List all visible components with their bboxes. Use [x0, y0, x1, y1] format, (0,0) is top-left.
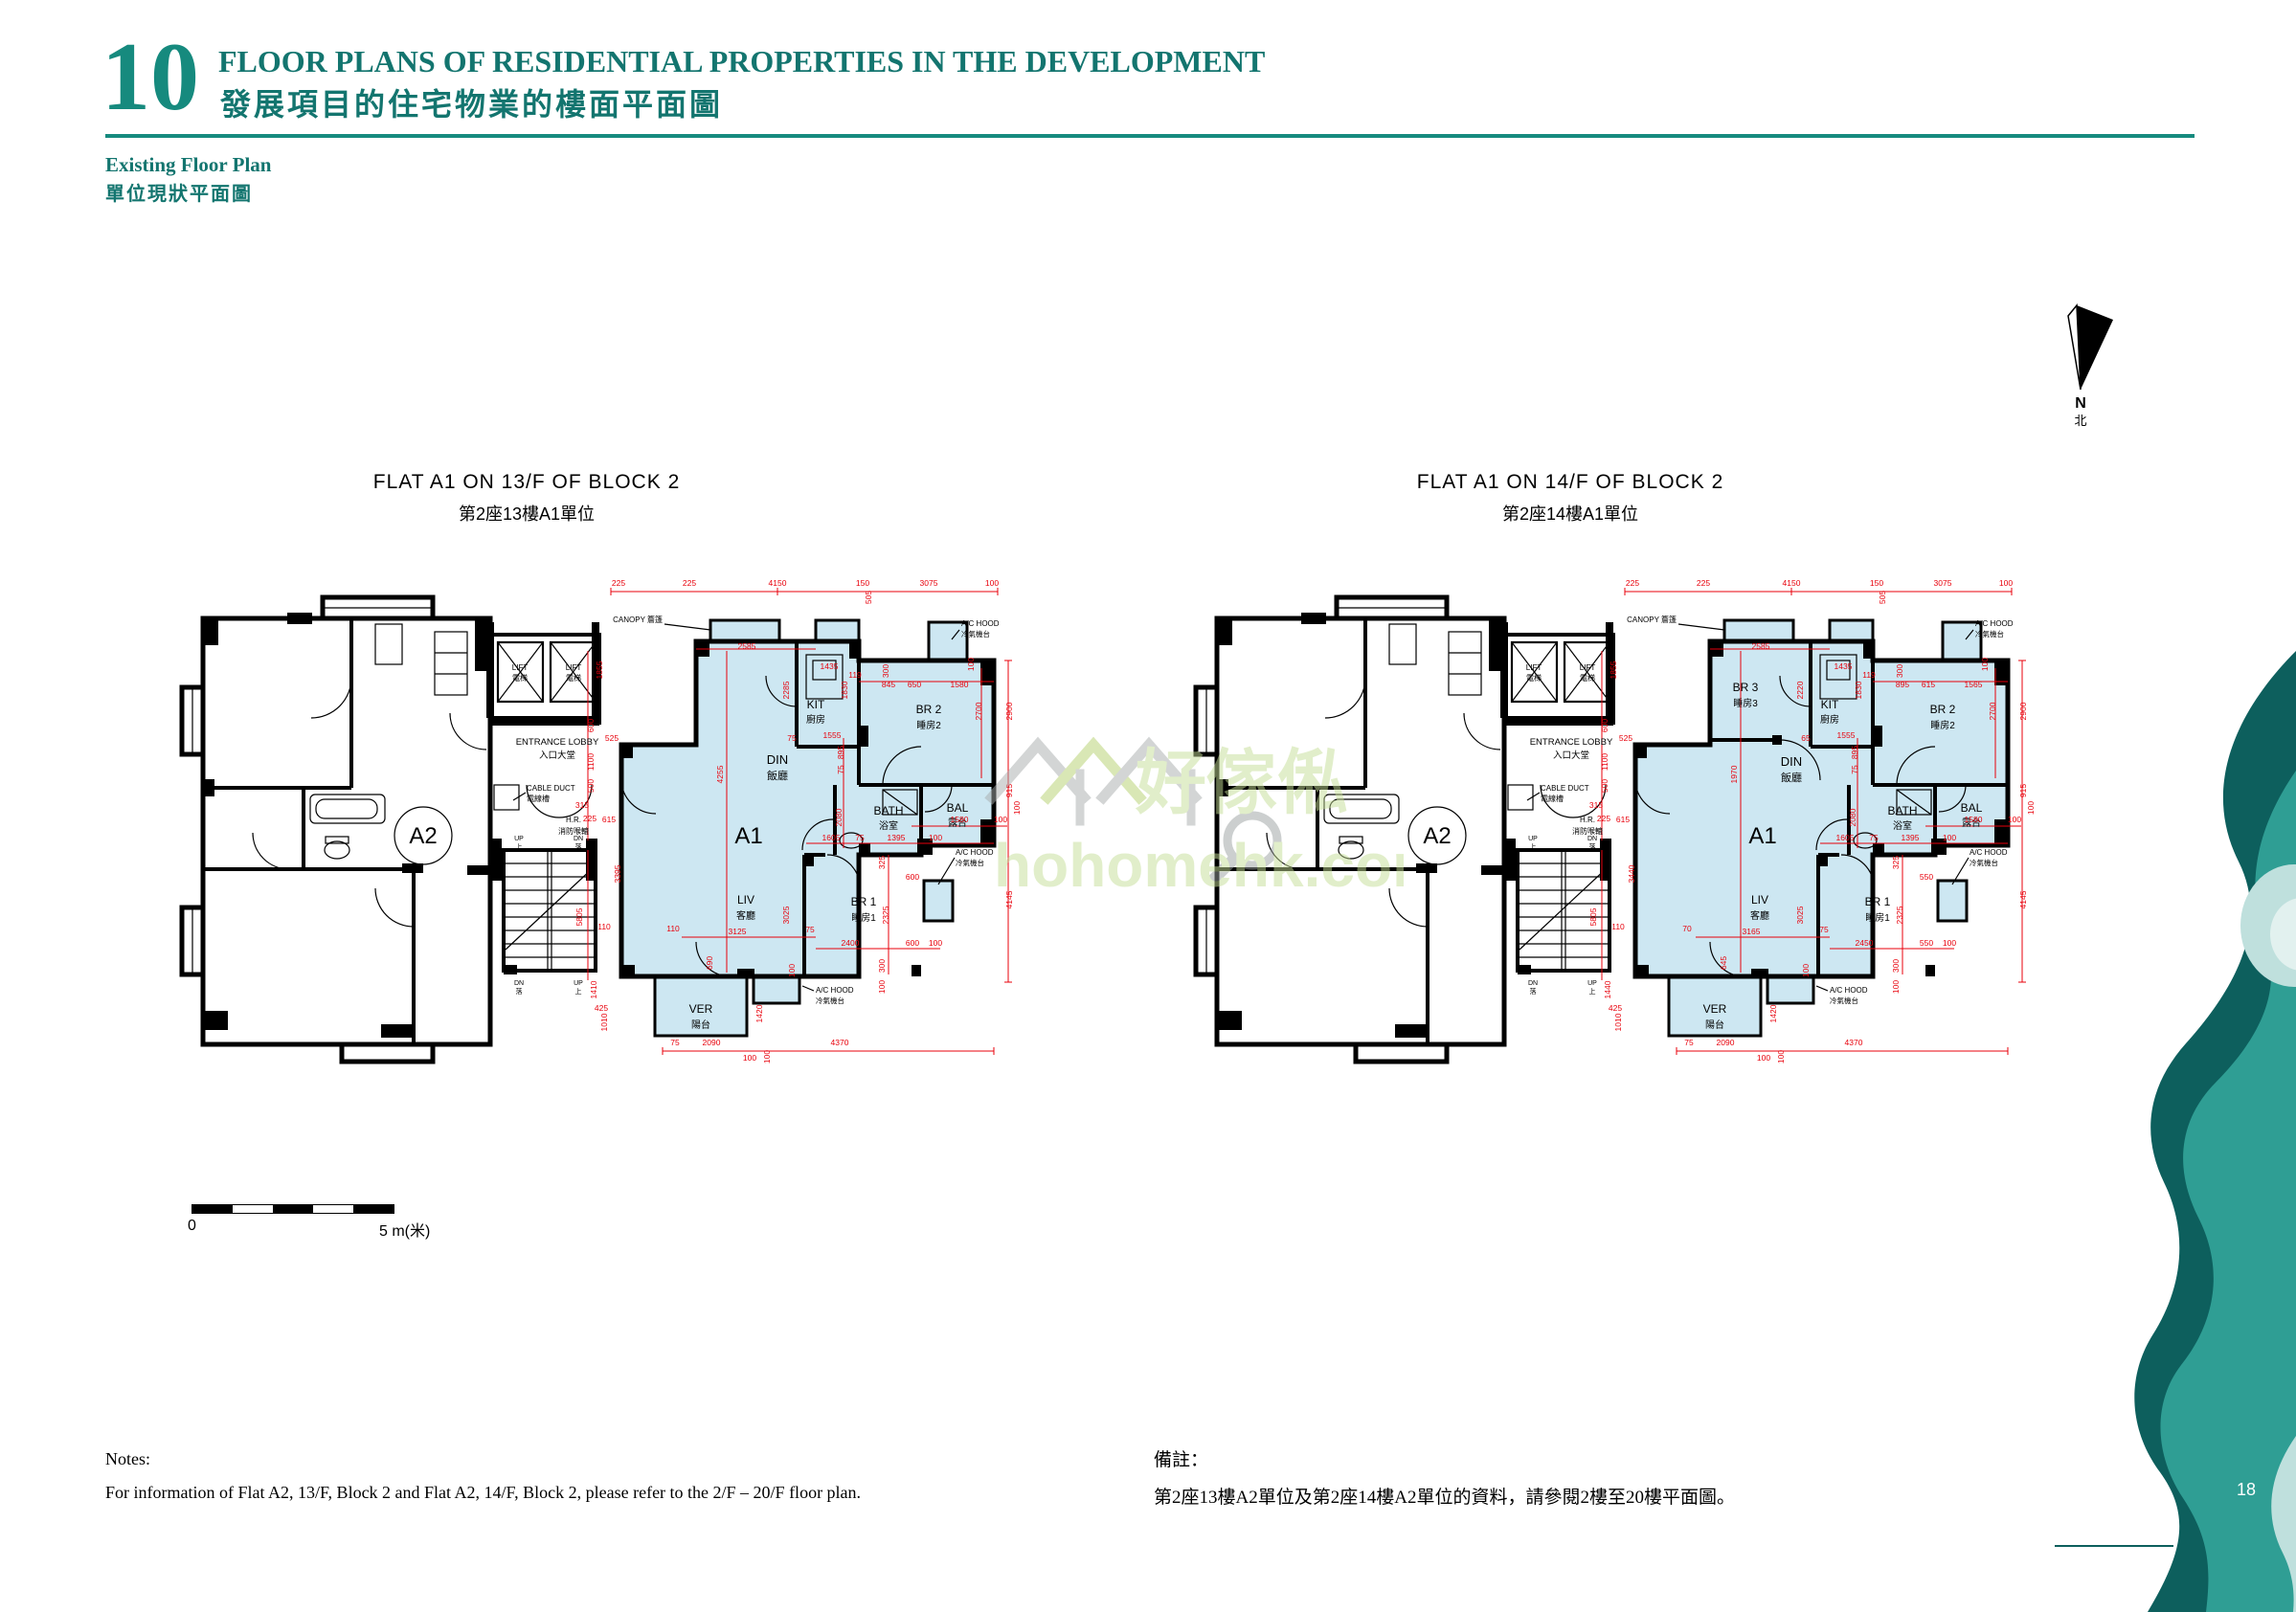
svg-text:650: 650 — [908, 680, 921, 689]
svg-text:100: 100 — [1980, 658, 1990, 671]
svg-text:690: 690 — [705, 956, 714, 970]
svg-text:895: 895 — [836, 746, 845, 759]
svg-text:5805: 5805 — [1588, 907, 1598, 926]
svg-text:冷氣機台: 冷氣機台 — [956, 858, 984, 867]
svg-text:75: 75 — [787, 733, 797, 743]
svg-text:1580: 1580 — [1965, 815, 1983, 824]
svg-text:BAL: BAL — [947, 801, 969, 815]
svg-text:110: 110 — [597, 922, 611, 931]
svg-text:A1: A1 — [734, 823, 762, 849]
svg-text:300: 300 — [1891, 959, 1901, 973]
svg-text:2285: 2285 — [781, 681, 791, 699]
svg-text:落: 落 — [575, 842, 582, 851]
svg-text:150: 150 — [1870, 578, 1883, 588]
svg-text:客廳: 客廳 — [736, 909, 755, 922]
svg-text:5805: 5805 — [574, 907, 584, 926]
svg-text:845: 845 — [882, 680, 895, 689]
svg-text:UP: UP — [514, 836, 524, 842]
svg-text:615: 615 — [1616, 815, 1630, 824]
svg-text:DN: DN — [1528, 980, 1538, 987]
svg-text:陽台: 陽台 — [1705, 1019, 1724, 1031]
svg-text:2900: 2900 — [1004, 702, 1014, 720]
svg-text:500: 500 — [586, 779, 596, 793]
page-title: FLOOR PLANS OF RESIDENTIAL PROPERTIES IN… — [218, 44, 1265, 79]
svg-text:KIT: KIT — [807, 698, 825, 711]
svg-text:2450: 2450 — [1856, 938, 1874, 948]
svg-text:100: 100 — [1012, 801, 1022, 815]
svg-text:225: 225 — [1626, 578, 1639, 588]
svg-text:A2: A2 — [409, 823, 437, 849]
svg-text:3440: 3440 — [1627, 864, 1636, 883]
svg-text:75: 75 — [855, 833, 865, 842]
svg-text:315: 315 — [575, 800, 589, 810]
svg-text:75: 75 — [670, 1038, 680, 1047]
svg-text:3025: 3025 — [781, 906, 791, 924]
svg-text:65: 65 — [1801, 733, 1811, 743]
svg-text:1435: 1435 — [1835, 661, 1853, 671]
brochure-page: 10 FLOOR PLANS OF RESIDENTIAL PROPERTIES… — [0, 0, 2296, 1612]
svg-text:電梯: 電梯 — [512, 673, 528, 683]
svg-text:425: 425 — [1609, 1003, 1622, 1013]
svg-text:100: 100 — [966, 658, 976, 671]
svg-text:H.R.: H.R. — [1580, 816, 1595, 824]
svg-text:100: 100 — [1999, 578, 2013, 588]
svg-text:150: 150 — [856, 578, 869, 588]
svg-text:4145: 4145 — [1004, 890, 1014, 908]
notes-chinese: 備註： 第2座13樓A2單位及第2座14樓A2單位的資料，請參閱2樓至20樓平面… — [1154, 1445, 1735, 1509]
svg-text:A/C HOOD: A/C HOOD — [1975, 619, 2014, 628]
svg-text:2325: 2325 — [1895, 906, 1904, 924]
svg-text:4370: 4370 — [1845, 1038, 1863, 1047]
svg-text:A/C HOOD: A/C HOOD — [1970, 848, 2008, 857]
svg-text:電梯: 電梯 — [1526, 673, 1542, 683]
svg-text:H.R.: H.R. — [566, 816, 581, 824]
svg-text:3025: 3025 — [1795, 906, 1805, 924]
svg-text:DN: DN — [1587, 836, 1597, 842]
svg-text:1100: 1100 — [1600, 753, 1609, 772]
svg-text:BR 2: BR 2 — [916, 703, 942, 716]
svg-text:225: 225 — [1597, 814, 1610, 823]
svg-text:3125: 3125 — [729, 927, 747, 936]
svg-text:浴室: 浴室 — [879, 819, 898, 832]
svg-text:500: 500 — [1600, 779, 1609, 793]
svg-text:冷氣機台: 冷氣機台 — [961, 629, 990, 638]
svg-text:1395: 1395 — [1902, 833, 1920, 842]
svg-text:電梯: 電梯 — [566, 673, 581, 683]
svg-text:BR 1: BR 1 — [851, 895, 877, 908]
svg-text:75: 75 — [1869, 833, 1879, 842]
svg-text:電梯: 電梯 — [1580, 673, 1595, 683]
svg-text:1970: 1970 — [1729, 765, 1739, 783]
svg-text:895: 895 — [1850, 746, 1859, 759]
notes-english: Notes: For information of Flat A2, 13/F,… — [105, 1449, 861, 1503]
svg-text:BAL: BAL — [1961, 801, 1983, 815]
svg-text:2090: 2090 — [703, 1038, 721, 1047]
svg-text:3165: 3165 — [1743, 927, 1761, 936]
svg-text:UP: UP — [574, 980, 583, 987]
subtitle: Existing Floor Plan — [105, 153, 271, 177]
svg-text:505: 505 — [1878, 591, 1887, 604]
svg-text:入口大堂: 入口大堂 — [539, 750, 575, 761]
svg-text:315: 315 — [1589, 800, 1603, 810]
svg-text:冷氣機台: 冷氣機台 — [1975, 629, 2004, 638]
svg-text:落: 落 — [516, 987, 523, 996]
svg-text:2700: 2700 — [1988, 702, 1997, 720]
svg-text:睡房1: 睡房1 — [851, 911, 876, 924]
svg-text:1440: 1440 — [1603, 980, 1612, 998]
svg-text:225: 225 — [683, 578, 696, 588]
svg-text:1855: 1855 — [1609, 660, 1618, 679]
svg-text:睡房3: 睡房3 — [1733, 697, 1758, 709]
svg-text:100: 100 — [929, 833, 942, 842]
svg-text:75: 75 — [1684, 1038, 1694, 1047]
svg-text:100: 100 — [1801, 964, 1811, 977]
svg-text:600: 600 — [906, 938, 919, 948]
svg-text:廚房: 廚房 — [1820, 713, 1839, 726]
svg-text:2585: 2585 — [1752, 641, 1770, 651]
page-title-chinese: 發展項目的住宅物業的樓面平面圖 — [220, 80, 723, 124]
svg-text:4150: 4150 — [1783, 578, 1801, 588]
svg-text:3075: 3075 — [920, 578, 938, 588]
svg-text:CABLE DUCT: CABLE DUCT — [527, 784, 575, 793]
subtitle-chinese: 單位現狀平面圖 — [105, 178, 253, 206]
svg-text:冷氣機台: 冷氣機台 — [1830, 996, 1858, 1005]
svg-text:1410: 1410 — [589, 980, 598, 998]
svg-text:100: 100 — [743, 1053, 756, 1063]
svg-text:入口大堂: 入口大堂 — [1553, 750, 1589, 761]
svg-text:615: 615 — [602, 815, 616, 824]
notes-body: For information of Flat A2, 13/F, Block … — [105, 1483, 861, 1503]
svg-text:LIFT: LIFT — [1580, 663, 1596, 672]
svg-text:廚房: 廚房 — [806, 713, 825, 726]
svg-text:550: 550 — [1920, 938, 1933, 948]
svg-text:CANOPY 簷篷: CANOPY 簷篷 — [1627, 615, 1677, 624]
svg-text:4150: 4150 — [769, 578, 787, 588]
svg-text:1010: 1010 — [599, 1013, 609, 1031]
svg-text:LIV: LIV — [737, 893, 754, 907]
svg-text:100: 100 — [762, 1050, 772, 1063]
svg-text:75: 75 — [1850, 765, 1859, 774]
svg-text:CANOPY 簷篷: CANOPY 簷篷 — [613, 615, 663, 624]
svg-text:A/C HOOD: A/C HOOD — [956, 848, 994, 857]
svg-text:KIT: KIT — [1821, 698, 1839, 711]
svg-text:飯廳: 飯廳 — [767, 769, 788, 782]
svg-text:LIFT: LIFT — [566, 663, 582, 672]
plan-title-14f-zh: 第2座14樓A1單位 — [1283, 501, 1857, 526]
svg-text:525: 525 — [605, 733, 619, 743]
svg-text:上: 上 — [516, 842, 523, 851]
notes-heading: Notes: — [105, 1449, 861, 1469]
svg-text:75: 75 — [836, 765, 845, 774]
svg-text:2090: 2090 — [1717, 1038, 1735, 1047]
svg-text:2700: 2700 — [974, 702, 983, 720]
svg-text:4370: 4370 — [831, 1038, 849, 1047]
plan-title-13f: FLAT A1 ON 13/F OF BLOCK 2 第2座13樓A1單位 — [239, 471, 814, 526]
svg-text:3075: 3075 — [1934, 578, 1952, 588]
svg-text:上: 上 — [1530, 842, 1537, 851]
svg-text:525: 525 — [1619, 733, 1632, 743]
svg-text:100: 100 — [1943, 938, 1956, 948]
svg-text:325: 325 — [1891, 856, 1901, 869]
svg-text:冷氣機台: 冷氣機台 — [1970, 858, 1998, 867]
svg-text:1565: 1565 — [1965, 680, 1983, 689]
notes-heading-zh: 備註： — [1154, 1445, 1735, 1471]
svg-text:1605: 1605 — [822, 833, 841, 842]
svg-text:100: 100 — [1757, 1053, 1770, 1063]
svg-text:N: N — [2075, 395, 2086, 412]
svg-text:睡房2: 睡房2 — [1930, 719, 1955, 731]
notes-body-zh: 第2座13樓A2單位及第2座14樓A2單位的資料，請參閱2樓至20樓平面圖。 — [1154, 1483, 1735, 1509]
svg-text:615: 615 — [1922, 680, 1935, 689]
svg-text:1435: 1435 — [821, 661, 839, 671]
scale-bar — [191, 1204, 394, 1214]
svg-text:消防喉轆: 消防喉轆 — [558, 826, 589, 836]
scale-start-label: 0 — [188, 1218, 196, 1235]
svg-text:BR 2: BR 2 — [1930, 703, 1956, 716]
svg-text:3395: 3395 — [613, 864, 622, 883]
svg-text:BR 3: BR 3 — [1733, 681, 1759, 694]
svg-text:1830: 1830 — [840, 681, 849, 699]
wave-decoration — [2057, 593, 2296, 1612]
svg-text:A2: A2 — [1423, 823, 1451, 849]
svg-text:2900: 2900 — [2018, 702, 2028, 720]
svg-text:A1: A1 — [1748, 823, 1776, 849]
plan-title-13f-zh: 第2座13樓A1單位 — [239, 501, 814, 526]
svg-text:1580: 1580 — [951, 815, 969, 824]
plan-title-14f-en: FLAT A1 ON 14/F OF BLOCK 2 — [1283, 471, 1857, 494]
svg-text:北: 北 — [2074, 414, 2086, 428]
svg-text:1830: 1830 — [1854, 681, 1863, 699]
svg-text:1605: 1605 — [1836, 833, 1855, 842]
svg-text:2080: 2080 — [834, 808, 844, 826]
svg-text:100: 100 — [1776, 1050, 1786, 1063]
svg-text:UP: UP — [1528, 836, 1538, 842]
svg-text:100: 100 — [929, 938, 942, 948]
svg-text:1420: 1420 — [754, 1004, 764, 1022]
svg-text:645: 645 — [1719, 956, 1728, 970]
svg-text:110: 110 — [666, 924, 680, 933]
svg-text:浴室: 浴室 — [1893, 819, 1912, 832]
svg-text:UP: UP — [1587, 980, 1597, 987]
svg-text:300: 300 — [1895, 664, 1904, 678]
svg-text:110: 110 — [1611, 922, 1625, 931]
svg-text:VER: VER — [1703, 1002, 1727, 1016]
svg-text:電線槽: 電線槽 — [527, 794, 550, 803]
svg-text:100: 100 — [985, 578, 999, 588]
svg-text:4255: 4255 — [715, 765, 725, 783]
svg-text:1100: 1100 — [586, 753, 596, 772]
svg-text:落: 落 — [1530, 987, 1537, 996]
svg-text:BATH: BATH — [1887, 804, 1917, 817]
floor-plan-13f: LIFT電梯LIFT電梯ENTRANCE LOBBY入口大堂CABLE DUCT… — [146, 563, 1026, 1099]
svg-text:100: 100 — [2026, 801, 2036, 815]
svg-text:100: 100 — [1891, 980, 1901, 994]
svg-text:1555: 1555 — [1837, 730, 1856, 740]
svg-text:冷氣機台: 冷氣機台 — [816, 996, 844, 1005]
svg-text:119: 119 — [1862, 670, 1876, 680]
svg-text:915: 915 — [2018, 784, 2028, 797]
svg-text:1395: 1395 — [888, 833, 906, 842]
svg-text:425: 425 — [595, 1003, 608, 1013]
svg-text:600: 600 — [586, 719, 596, 732]
svg-text:客廳: 客廳 — [1750, 909, 1769, 922]
svg-text:70: 70 — [1682, 924, 1692, 933]
north-arrow-icon: N 北 — [2042, 299, 2128, 437]
svg-text:600: 600 — [906, 872, 919, 882]
svg-text:A/C HOOD: A/C HOOD — [961, 619, 1000, 628]
svg-text:睡房1: 睡房1 — [1865, 911, 1890, 924]
svg-text:1855: 1855 — [595, 660, 604, 679]
svg-text:2400: 2400 — [842, 938, 860, 948]
svg-text:225: 225 — [583, 814, 597, 823]
svg-text:ENTRANCE LOBBY: ENTRANCE LOBBY — [1530, 737, 1613, 748]
svg-text:A/C HOOD: A/C HOOD — [1830, 986, 1868, 995]
svg-text:1580: 1580 — [951, 680, 969, 689]
svg-text:119: 119 — [848, 670, 862, 680]
page-number: 18 — [2237, 1480, 2256, 1500]
svg-text:325: 325 — [877, 856, 887, 869]
svg-text:1010: 1010 — [1613, 1013, 1623, 1031]
svg-text:落: 落 — [1589, 842, 1596, 851]
svg-text:上: 上 — [575, 987, 582, 996]
section-number: 10 — [101, 29, 199, 126]
svg-text:DIN: DIN — [1781, 754, 1802, 769]
svg-text:100: 100 — [1943, 833, 1956, 842]
svg-text:BR 1: BR 1 — [1865, 895, 1891, 908]
header-divider — [105, 134, 2195, 138]
svg-text:225: 225 — [612, 578, 625, 588]
svg-text:A/C HOOD: A/C HOOD — [816, 986, 854, 995]
floor-plan-14f: LIFT電梯LIFT電梯ENTRANCE LOBBY入口大堂CABLE DUCT… — [1159, 563, 2040, 1099]
svg-text:75: 75 — [1819, 925, 1829, 934]
svg-text:2325: 2325 — [881, 906, 890, 924]
svg-text:上: 上 — [1589, 987, 1596, 996]
svg-text:1420: 1420 — [1768, 1004, 1778, 1022]
svg-text:DN: DN — [574, 836, 583, 842]
svg-text:DIN: DIN — [767, 752, 788, 767]
svg-text:LIV: LIV — [1751, 893, 1768, 907]
svg-text:550: 550 — [1920, 872, 1933, 882]
svg-text:100: 100 — [787, 964, 797, 977]
svg-text:LIFT: LIFT — [1526, 663, 1542, 672]
plan-title-14f: FLAT A1 ON 14/F OF BLOCK 2 第2座14樓A1單位 — [1283, 471, 1857, 526]
svg-text:CABLE DUCT: CABLE DUCT — [1541, 784, 1589, 793]
svg-text:陽台: 陽台 — [691, 1019, 710, 1031]
svg-text:2220: 2220 — [1795, 681, 1805, 699]
svg-text:600: 600 — [1600, 719, 1609, 732]
svg-text:225: 225 — [1697, 578, 1710, 588]
svg-text:505: 505 — [864, 591, 873, 604]
svg-text:300: 300 — [881, 664, 890, 678]
svg-text:4145: 4145 — [2018, 890, 2028, 908]
svg-text:100: 100 — [2008, 815, 2021, 824]
svg-text:睡房2: 睡房2 — [916, 719, 941, 731]
svg-text:75: 75 — [805, 925, 815, 934]
scale-end-label: 5 m(米) — [379, 1218, 430, 1241]
svg-text:1555: 1555 — [823, 730, 842, 740]
svg-text:VER: VER — [689, 1002, 713, 1016]
svg-text:電線槽: 電線槽 — [1541, 794, 1564, 803]
svg-text:915: 915 — [1004, 784, 1014, 797]
svg-text:100: 100 — [877, 980, 887, 994]
svg-text:895: 895 — [1896, 680, 1909, 689]
svg-text:DN: DN — [514, 980, 524, 987]
svg-text:飯廳: 飯廳 — [1781, 771, 1802, 784]
svg-text:100: 100 — [994, 815, 1007, 824]
svg-text:BATH: BATH — [873, 804, 903, 817]
svg-text:LIFT: LIFT — [512, 663, 529, 672]
svg-text:2080: 2080 — [1848, 808, 1857, 826]
plan-title-13f-en: FLAT A1 ON 13/F OF BLOCK 2 — [239, 471, 814, 494]
svg-text:消防喉轆: 消防喉轆 — [1572, 826, 1603, 836]
svg-text:ENTRANCE LOBBY: ENTRANCE LOBBY — [516, 737, 599, 748]
svg-text:300: 300 — [877, 959, 887, 973]
svg-text:2585: 2585 — [738, 641, 756, 651]
